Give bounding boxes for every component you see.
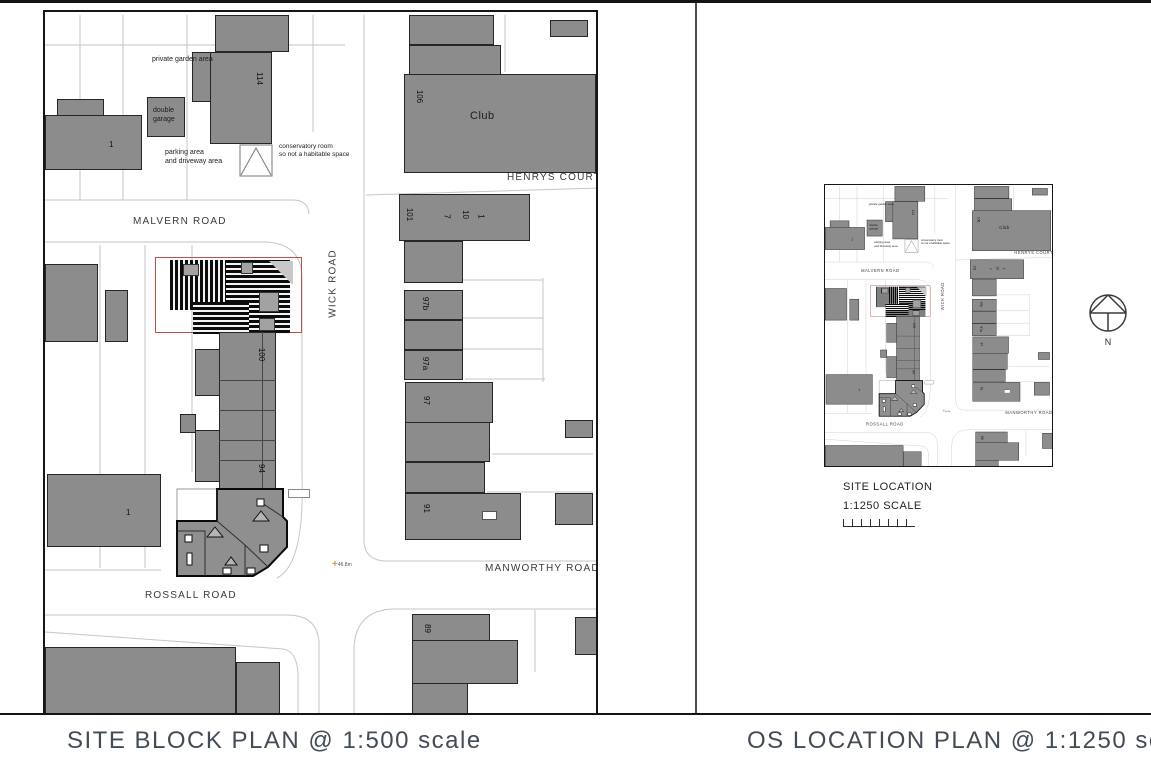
scale-bar <box>843 519 915 527</box>
club-building <box>404 74 596 173</box>
building <box>412 683 468 713</box>
house-number: 7 <box>443 214 452 218</box>
proposed-building-hatch <box>193 302 249 334</box>
building <box>972 279 996 296</box>
house-number: 91 <box>422 504 431 513</box>
roof-feature <box>259 318 275 331</box>
house-number: 106 <box>977 217 981 222</box>
conservatory-outline <box>239 144 273 177</box>
house-number: 97b <box>979 302 983 307</box>
building <box>825 227 865 250</box>
house-number: 91 <box>980 387 984 391</box>
building <box>973 382 1021 401</box>
building <box>555 493 593 525</box>
double-garage-label: double garage <box>869 224 878 231</box>
spot-level-value: 46.8m <box>945 410 951 412</box>
road-label-henrys-court: HENRYS COURT <box>1014 251 1053 256</box>
road-label-rossall: ROSSALL ROAD <box>145 590 237 601</box>
house-number: 106 <box>415 90 424 103</box>
proposed-building-hatch <box>886 304 909 317</box>
spot-level-value: 46.8m <box>338 562 352 568</box>
house-number: 10 <box>461 210 470 219</box>
roof-feature <box>882 288 889 293</box>
building <box>405 382 493 423</box>
house-number: 101 <box>973 265 977 270</box>
block-plan-canvas: 1 double garage 114 private garden area … <box>825 185 1053 467</box>
house-number: 1 <box>109 140 113 149</box>
conservatory-label: conservatory room so not a habitable spa… <box>279 143 349 159</box>
road-label-manworthy: MANWORTHY ROAD <box>1005 411 1052 416</box>
building <box>1034 382 1050 395</box>
house-number: 97 <box>422 396 431 405</box>
private-garden-label: private garden area <box>152 56 213 65</box>
building <box>405 493 521 540</box>
house-number: 101 <box>405 208 414 221</box>
roof-feature <box>241 262 253 274</box>
path-outline <box>925 381 934 385</box>
north-arrow-icon <box>1087 292 1131 336</box>
north-label: N <box>1100 337 1116 347</box>
double-garage-label: double garage <box>153 107 175 125</box>
party-wall <box>219 380 276 381</box>
party-wall <box>219 410 276 411</box>
building <box>210 52 272 144</box>
building <box>195 349 220 396</box>
building <box>826 374 873 404</box>
building <box>409 15 494 45</box>
road-label-malvern: MALVERN ROAD <box>861 269 899 274</box>
house-number: 100 <box>912 323 916 328</box>
house-number: 100 <box>257 348 266 361</box>
spot-level-marker: +46.8m <box>943 409 951 414</box>
house-number: 89 <box>423 624 432 633</box>
building <box>405 462 485 493</box>
club-label: Club <box>470 110 495 124</box>
corner-building <box>165 487 291 579</box>
building <box>1042 433 1052 449</box>
parking-area-label: parking area and driveway area <box>165 149 222 167</box>
house-number: 10 <box>996 266 1000 270</box>
spot-level-marker: +46.8m <box>332 559 352 570</box>
road-label-manworthy: MANWORTHY ROAD <box>485 563 598 574</box>
building <box>565 420 593 438</box>
roof-feature <box>913 310 920 315</box>
building <box>1032 188 1048 195</box>
roof-feature <box>913 300 921 308</box>
house-number: 94 <box>912 370 916 374</box>
road-label-wick: WICK ROAD <box>328 248 339 320</box>
building <box>404 290 463 320</box>
building <box>404 241 463 283</box>
party-wall <box>219 440 276 441</box>
terrace-building <box>219 332 276 490</box>
block-plan-frame: 1 double garage 114 private garden area … <box>43 10 598 713</box>
road-label-rossall: ROSSALL ROAD <box>866 422 904 427</box>
building <box>404 350 463 380</box>
house-number: 89 <box>980 436 984 440</box>
house-number: 94 <box>257 464 266 473</box>
block-plan-canvas: 1 double garage 114 private garden area … <box>45 12 598 713</box>
building <box>825 445 903 467</box>
building <box>973 353 1008 369</box>
club-label: Club <box>999 225 1009 231</box>
building <box>975 460 998 467</box>
club-building <box>972 210 1051 251</box>
house-number: 1 <box>1002 268 1006 270</box>
panel-divider <box>695 3 697 713</box>
path-outline <box>288 489 310 498</box>
building <box>895 186 925 201</box>
building <box>973 370 1006 383</box>
house-number: 97b <box>421 297 430 310</box>
house-number: 97 <box>980 342 984 346</box>
building <box>404 320 463 350</box>
site-location-title: SITE LOCATION <box>843 481 932 493</box>
party-wall <box>219 460 276 461</box>
house-number: 1 <box>851 237 853 241</box>
parking-area-label: parking area and driveway area <box>874 241 897 248</box>
roof-feature <box>183 264 199 276</box>
building <box>1038 352 1049 359</box>
building <box>850 299 859 320</box>
building <box>887 323 897 342</box>
house-number: 114 <box>911 210 915 215</box>
house-number: 1 <box>858 388 860 392</box>
building <box>412 640 518 684</box>
house-number: 114 <box>255 72 264 85</box>
roof-feature <box>905 288 910 293</box>
house-number: 7 <box>988 268 992 270</box>
porch-outline <box>1004 390 1010 394</box>
road-label-malvern: MALVERN ROAD <box>133 216 227 227</box>
building <box>47 474 161 547</box>
building <box>105 290 128 342</box>
house-number: 1 <box>477 214 486 218</box>
building <box>972 299 996 311</box>
porch-outline <box>482 511 497 520</box>
building <box>972 324 996 336</box>
building <box>550 20 588 37</box>
building <box>180 414 196 433</box>
road-label-henrys-court: HENRYS COURT <box>507 172 598 183</box>
building <box>45 264 98 342</box>
corner-building <box>874 380 926 418</box>
building <box>975 442 1018 460</box>
building <box>973 337 1009 354</box>
private-garden-label: private garden area <box>869 203 894 207</box>
building <box>903 452 921 468</box>
building <box>405 422 490 462</box>
house-number: 97a <box>979 326 983 331</box>
building <box>45 647 236 713</box>
building <box>893 201 918 239</box>
building <box>45 115 142 170</box>
location-plan-caption: OS LOCATION PLAN @ 1:1250 scale <box>747 727 1151 755</box>
house-number: 97a <box>421 357 430 370</box>
building <box>575 617 598 655</box>
building <box>195 430 220 482</box>
building <box>215 15 289 52</box>
page-top-border <box>0 0 1151 3</box>
building <box>825 288 847 320</box>
block-plan-caption: SITE BLOCK PLAN @ 1:500 scale <box>67 727 482 755</box>
building <box>887 356 897 377</box>
road-label-wick: WICK ROAD <box>941 282 946 312</box>
conservatory-outline <box>905 239 919 253</box>
building <box>972 311 996 323</box>
roof-feature <box>259 292 279 312</box>
building <box>974 186 1009 198</box>
house-number: 1 <box>126 508 130 517</box>
building <box>236 662 280 713</box>
page-bottom-border <box>0 713 1151 715</box>
conservatory-label: conservatory room so not a habitable spa… <box>921 239 950 246</box>
site-location-scale: 1:1250 SCALE <box>843 500 922 512</box>
location-plan-frame: 1 double garage 114 private garden area … <box>824 184 1053 467</box>
